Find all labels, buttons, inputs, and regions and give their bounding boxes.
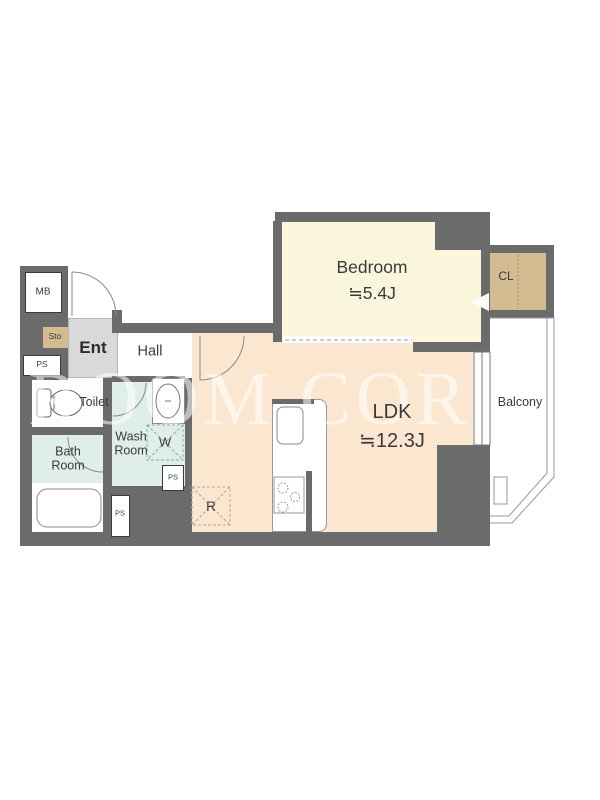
wall xyxy=(481,310,554,318)
wall xyxy=(546,245,554,318)
wall xyxy=(273,221,282,342)
wall xyxy=(474,342,490,354)
pipe-shaft-label-3: PS xyxy=(115,510,125,519)
balcony-label: Balcony xyxy=(498,395,542,409)
meter-box-label: MB xyxy=(36,286,51,298)
balcony-outline xyxy=(490,318,554,523)
wall xyxy=(20,532,490,546)
washroom-label: Wash Room xyxy=(114,430,147,459)
ldk-window xyxy=(474,352,490,445)
storage-label: Sto xyxy=(49,332,62,342)
wall xyxy=(112,323,282,333)
wall xyxy=(437,445,490,532)
bedroom-label: Bedroom ≒5.4J xyxy=(336,254,407,306)
closet-label: CL xyxy=(498,270,513,284)
pipe-shaft-label-2: PS xyxy=(168,474,178,483)
wall xyxy=(481,250,490,342)
hall-label: Hall xyxy=(138,344,163,361)
washing-machine-label: W xyxy=(159,436,171,451)
bathroom-label: Bath Room xyxy=(51,445,84,474)
bathtub-zone xyxy=(31,483,105,532)
floor-plan-page: ROOM COR MB Sto PS PS PS Ent Hall Toilet… xyxy=(0,0,600,800)
pipe-shaft-label-1: PS xyxy=(36,360,47,370)
ldk-label: LDK ≒12.3J xyxy=(359,398,425,456)
entrance-door-swing xyxy=(72,272,116,316)
refrigerator-label: R xyxy=(206,499,216,515)
bedroom-sliding-door-strip xyxy=(283,336,413,343)
toilet-label: Toilet xyxy=(79,395,108,409)
entrance-label: Ent xyxy=(79,338,106,358)
wall xyxy=(435,212,490,250)
wall xyxy=(490,245,554,253)
